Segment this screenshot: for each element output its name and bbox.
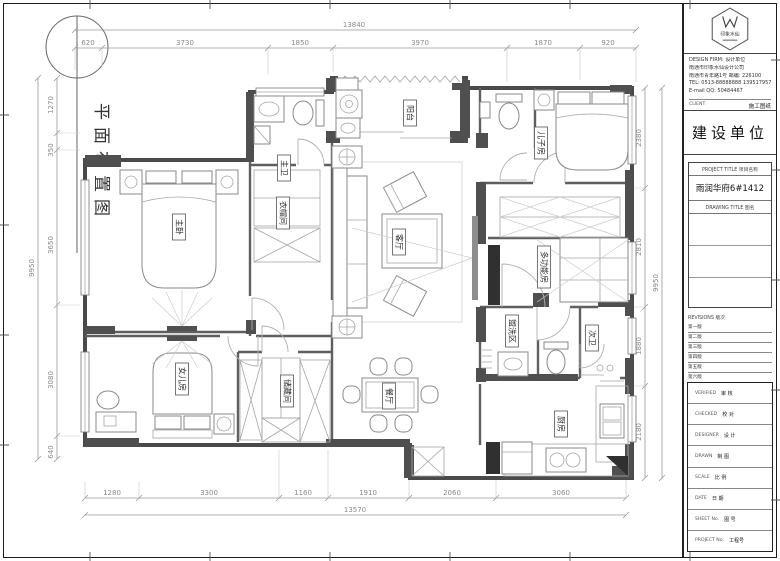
dim: 350 bbox=[47, 143, 55, 156]
room-label-master: 主卧 bbox=[173, 214, 186, 240]
dim: 920 bbox=[601, 39, 614, 47]
revision-row: 第二版 bbox=[688, 333, 772, 343]
field-en: SHEET No. bbox=[695, 517, 719, 522]
svg-text:盥洗区: 盥洗区 bbox=[508, 319, 518, 343]
revisions-section: REVISIONS 版次 第一版 第二版 第三版 第四版 第五版 第六版 bbox=[684, 312, 776, 380]
field-zh: 比 例 bbox=[715, 474, 727, 481]
window bbox=[628, 242, 636, 294]
room-label-multi: 多功能房 bbox=[538, 246, 551, 288]
dim: 3970 bbox=[411, 39, 429, 47]
field-row-checked: CHECKED 校 对 bbox=[688, 404, 772, 425]
dim-top-total: 13840 bbox=[343, 21, 365, 29]
room-label-balcony: 阳台 bbox=[404, 100, 417, 126]
svg-text:客厅: 客厅 bbox=[395, 234, 405, 250]
firm-line: 南通市印象水仙设计公司 bbox=[689, 65, 771, 73]
dim: 1910 bbox=[359, 489, 377, 497]
field-row-drawn: DRAWN 制 图 bbox=[688, 446, 772, 467]
revision-row: 第五版 bbox=[688, 363, 772, 373]
drawing-sheet: 平面布置图 13840 620 3730 1850 3970 1870 920 … bbox=[0, 0, 780, 561]
project-name: 雨润华府6#1412 bbox=[689, 176, 771, 201]
dim: 3650 bbox=[47, 236, 55, 254]
title-block: 印象水仙 DESIGN FIRM: 设计单位 南通市印象水仙设计公司 南通市青年… bbox=[682, 4, 776, 557]
client-label: CLIENT bbox=[689, 102, 705, 110]
room-label-girl-room: 女儿房 bbox=[176, 363, 189, 395]
field-zh: 设 计 bbox=[724, 432, 736, 439]
room-label-master-bath: 主卫 bbox=[278, 155, 291, 181]
room-label-second-bath: 次卫 bbox=[586, 325, 599, 351]
dim-right-total: 9950 bbox=[652, 274, 660, 292]
revisions-label: REVISIONS 版次 bbox=[688, 312, 772, 323]
dim: 620 bbox=[81, 39, 94, 47]
window bbox=[628, 396, 636, 442]
field-en: DATE bbox=[695, 496, 707, 501]
svg-text:储藏间: 储藏间 bbox=[283, 379, 293, 403]
drawing-title-blank bbox=[689, 246, 771, 278]
field-en: VERIFIED bbox=[695, 391, 716, 396]
dim: 640 bbox=[47, 445, 55, 458]
svg-text:女儿房: 女儿房 bbox=[178, 367, 188, 391]
logo-name: 印象水仙 bbox=[720, 30, 739, 37]
field-zh: 校 对 bbox=[722, 411, 734, 418]
svg-text:衣帽间: 衣帽间 bbox=[279, 201, 289, 225]
balcony bbox=[336, 78, 362, 138]
dim: 3080 bbox=[47, 371, 55, 389]
design-firm-label: DESIGN FIRM: 设计单位 bbox=[689, 57, 771, 65]
field-en: PROJECT No. bbox=[695, 538, 724, 543]
dim-left-total: 9950 bbox=[28, 259, 36, 277]
firm-line: TEL: 0513-88888888 13951795718 bbox=[689, 80, 771, 88]
svg-text:主卧: 主卧 bbox=[175, 219, 185, 235]
field-en: DESIGNER bbox=[695, 433, 719, 438]
revision-row: 第一版 bbox=[688, 323, 772, 333]
room-label-living: 客厅 bbox=[393, 229, 406, 255]
girl-room bbox=[96, 336, 234, 438]
drawing-title-label: DRAWING TITLE 图名 bbox=[689, 201, 771, 214]
field-row-verified: VERIFIED 审 核 bbox=[688, 383, 772, 404]
dim: 1850 bbox=[291, 39, 309, 47]
entry-cabinet bbox=[412, 447, 444, 476]
room-label-kitchen: 厨房 bbox=[555, 411, 568, 437]
client-title: 建设单位 bbox=[684, 111, 776, 155]
window bbox=[81, 180, 89, 295]
field-zh: 图 号 bbox=[724, 516, 736, 523]
room-label-closet: 衣帽间 bbox=[277, 197, 290, 229]
svg-text:多功能房: 多功能房 bbox=[540, 251, 550, 283]
room-label-boy-room: 儿子房 bbox=[535, 127, 548, 159]
svg-text:主卫: 主卫 bbox=[280, 160, 290, 176]
window bbox=[628, 96, 636, 164]
drawing-title-blank bbox=[689, 214, 771, 246]
field-en: DRAWN bbox=[695, 454, 712, 459]
hall-closet bbox=[500, 197, 620, 237]
dim: 3060 bbox=[552, 489, 570, 497]
svg-text:餐厅: 餐厅 bbox=[385, 388, 394, 404]
field-en: SCALE bbox=[695, 475, 710, 480]
logo-hexagon-icon: 印象水仙 bbox=[709, 6, 751, 52]
dim: 3730 bbox=[176, 39, 194, 47]
field-zh: 工程号 bbox=[729, 537, 744, 544]
boy-room bbox=[480, 90, 628, 170]
field-zh: 审 核 bbox=[721, 390, 733, 397]
firm-line: E-mail QQ: 50484467 bbox=[689, 88, 771, 96]
field-row-sheet-no: SHEET No. 图 号 bbox=[688, 510, 772, 531]
field-en: CHECKED bbox=[695, 412, 717, 417]
field-row-date: DATE 日 期 bbox=[688, 489, 772, 510]
dim: 2060 bbox=[443, 489, 461, 497]
svg-text:厨房: 厨房 bbox=[557, 416, 567, 432]
revision-row: 第四版 bbox=[688, 353, 772, 363]
window bbox=[81, 352, 89, 432]
field-zh: 制 图 bbox=[717, 453, 729, 460]
project-title-box: PROJECT TITLE 项目名称 雨润华府6#1412 DRAWING TI… bbox=[688, 162, 772, 308]
field-row-project-no: PROJECT No. 工程号 bbox=[688, 531, 772, 551]
dim: 1870 bbox=[534, 39, 552, 47]
room-label-storage: 储藏间 bbox=[281, 375, 294, 407]
room-label-wash: 盥洗区 bbox=[506, 315, 519, 347]
field-row-scale: SCALE 比 例 bbox=[688, 468, 772, 489]
signature-fields-box: VERIFIED 审 核 CHECKED 校 对 DESIGNER 设 计 DR… bbox=[687, 382, 773, 552]
dim: 1270 bbox=[47, 96, 55, 114]
dim: 3300 bbox=[200, 489, 218, 497]
room-label-dining: 餐厅 bbox=[383, 383, 396, 409]
window bbox=[628, 318, 636, 354]
dim: 1160 bbox=[294, 489, 312, 497]
firm-line: 南通市青年路1号 邮编: 226100 bbox=[689, 73, 771, 81]
client-stage-row: CLIENT 施工图纸 bbox=[689, 99, 771, 110]
stage-label: 施工图纸 bbox=[749, 102, 771, 110]
window bbox=[256, 88, 324, 96]
design-firm-info: DESIGN FIRM: 设计单位 南通市印象水仙设计公司 南通市青年路1号 邮… bbox=[684, 54, 776, 111]
field-zh: 日 期 bbox=[712, 495, 724, 502]
field-row-designer: DESIGNER 设 计 bbox=[688, 425, 772, 446]
dim-bottom-total: 13570 bbox=[344, 506, 366, 514]
svg-text:阳台: 阳台 bbox=[406, 105, 416, 121]
floor-plan-canvas: 平面布置图 13840 620 3730 1850 3970 1870 920 … bbox=[0, 0, 780, 561]
svg-text:儿子房: 儿子房 bbox=[537, 131, 547, 155]
project-title-label: PROJECT TITLE 项目名称 bbox=[689, 163, 771, 176]
master-bath bbox=[254, 96, 324, 144]
dim: 1280 bbox=[103, 489, 121, 497]
firm-logo: 印象水仙 bbox=[684, 4, 776, 54]
revision-row: 第三版 bbox=[688, 343, 772, 353]
master-bedroom bbox=[120, 170, 238, 331]
svg-text:次卫: 次卫 bbox=[588, 330, 598, 346]
